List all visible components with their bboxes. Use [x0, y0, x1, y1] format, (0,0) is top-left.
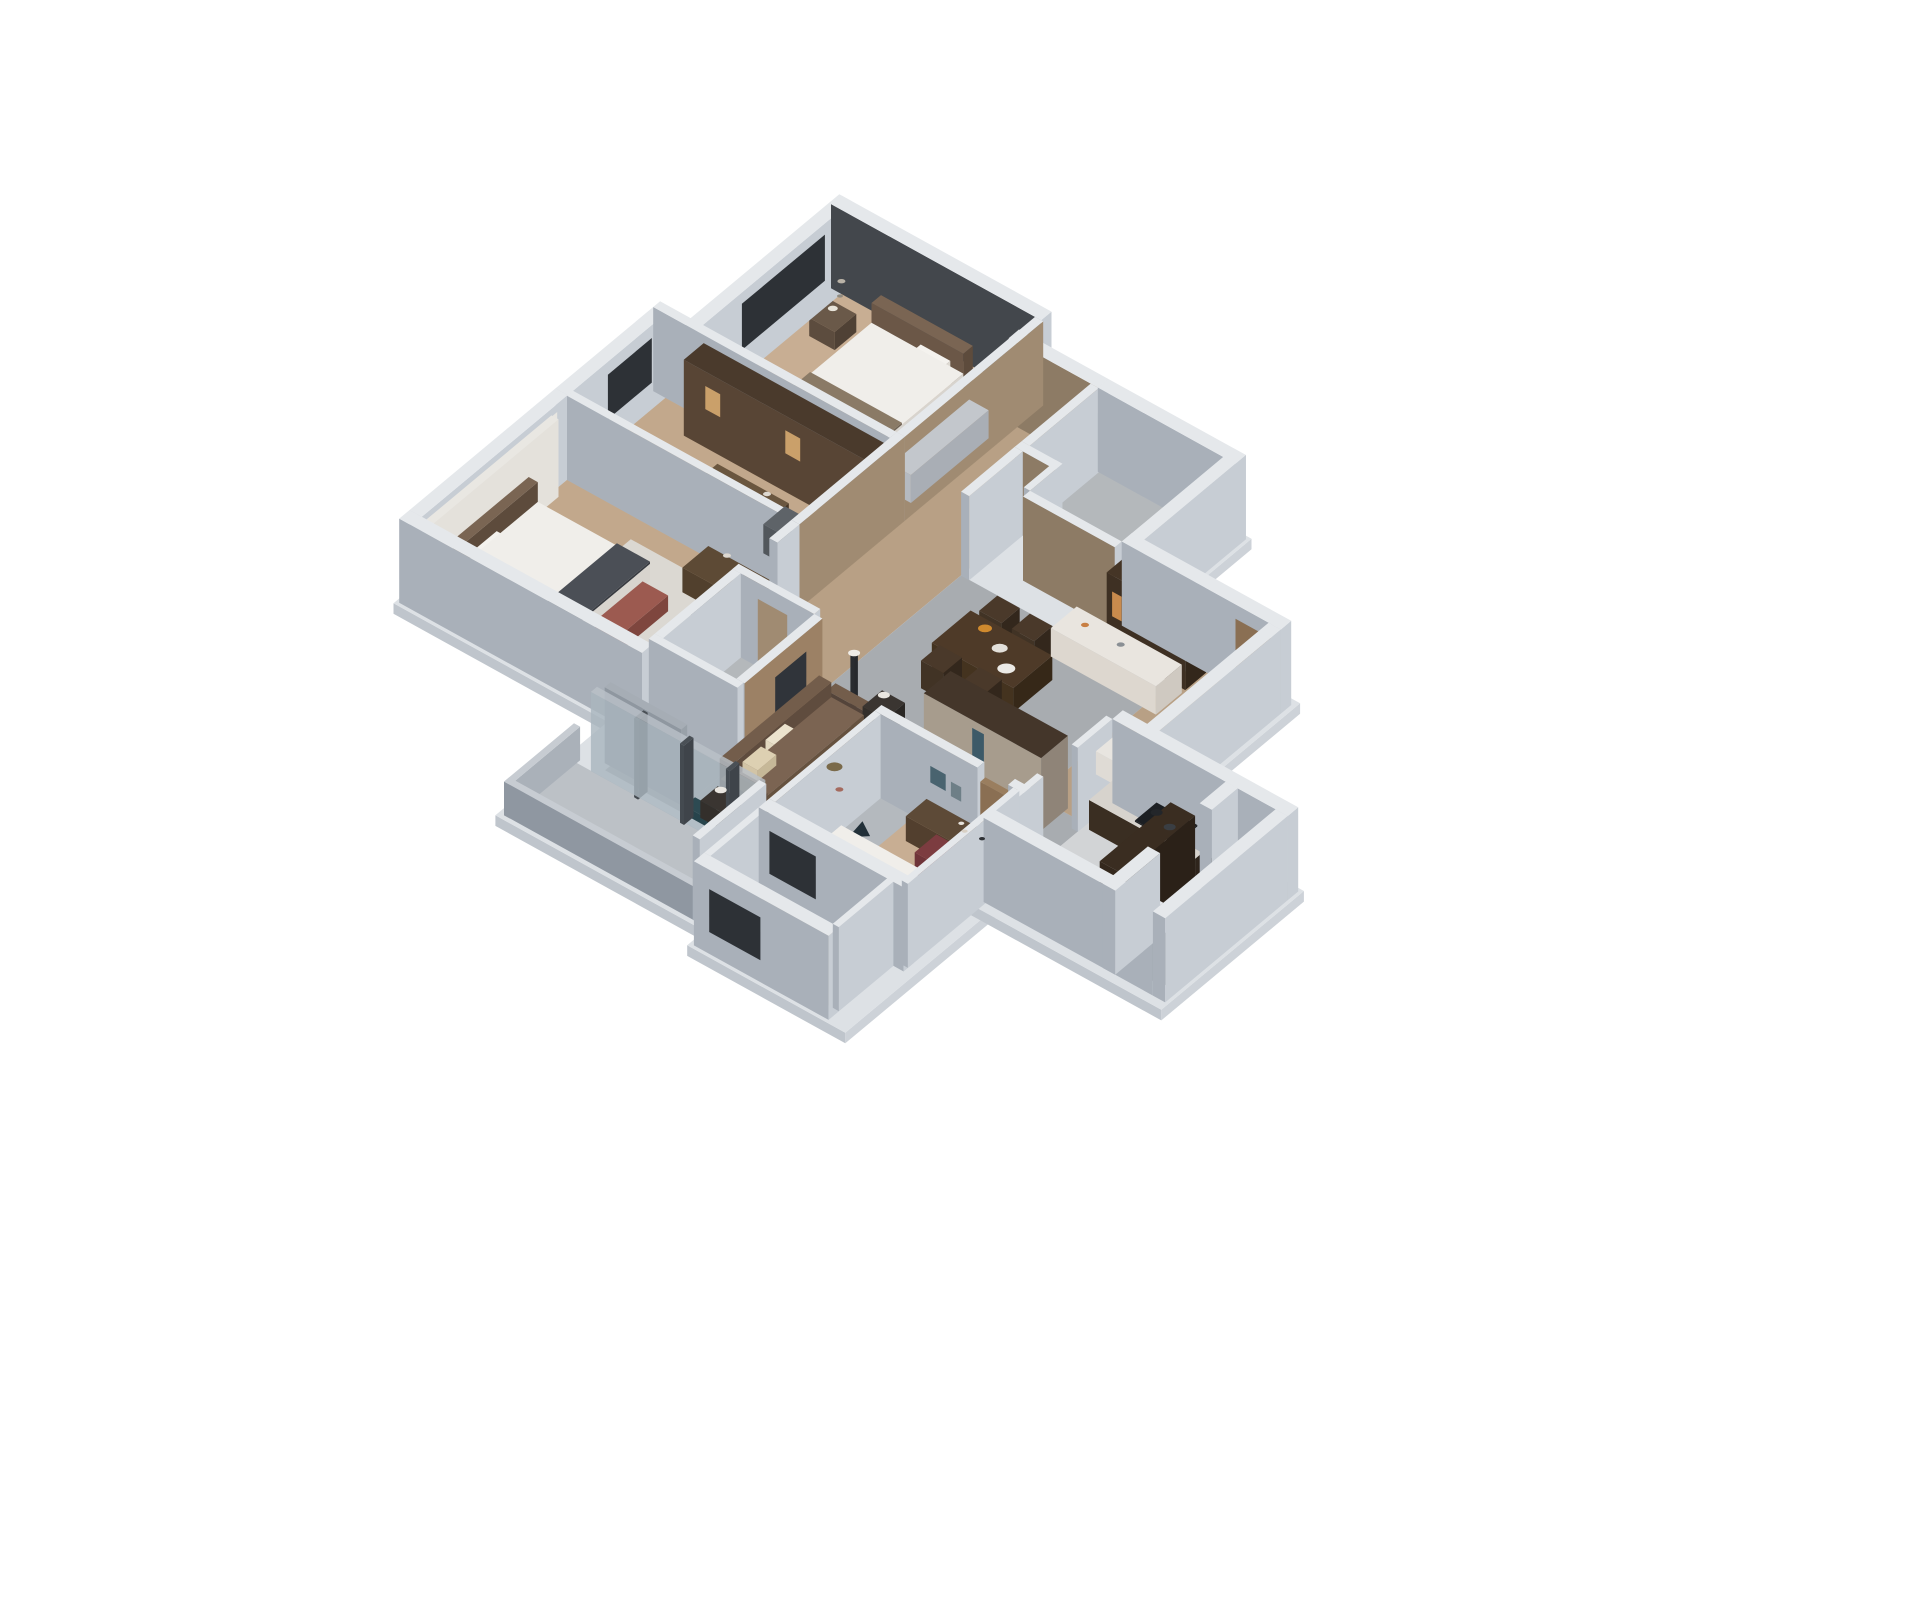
- fruit-plate-dining: [978, 625, 992, 633]
- wall-dining-entry-north-face-east: [1281, 621, 1291, 714]
- wall-kitchen-west-a-face-south: [1072, 744, 1078, 832]
- wine-cabinet-backlit-panel-0: [1112, 592, 1122, 622]
- wall-kitchen-north-exterior-face-east: [1288, 807, 1298, 900]
- decor-counter-1: [1081, 623, 1089, 627]
- desk-lamp-master: [723, 553, 731, 557]
- floor-lamp-shade: [848, 650, 860, 657]
- wall-bedroom-b-east-face-south: [902, 880, 908, 968]
- page-canvas: [0, 0, 1920, 1617]
- pendant-light-2: [837, 294, 843, 297]
- placemat-dining: [997, 664, 1015, 674]
- pot-cooktop-2: [1164, 824, 1176, 831]
- lamp-side-table-north: [878, 692, 890, 699]
- pot-cooktop-1: [1151, 809, 1163, 816]
- lamp-side-table-south: [715, 787, 727, 794]
- lamp-nightstand-a: [828, 306, 838, 312]
- wall-hall-east-lower-face-south: [961, 492, 969, 581]
- apartment-3d-floor-plan-render: [0, 0, 1920, 1617]
- clock-desk-b: [979, 837, 985, 840]
- mug-desk-b-2: [962, 829, 968, 832]
- decor-counter-2: [1117, 642, 1125, 646]
- mug-desk-b-1: [958, 822, 964, 825]
- wall-duct-east-exterior-face-south: [1153, 911, 1165, 1002]
- desk-lamp-study: [763, 492, 771, 496]
- slider-mullion-2-face-south: [680, 744, 684, 826]
- bonsai-coffee-table: [827, 762, 843, 771]
- pendant-light-1: [837, 279, 845, 283]
- wall-terrace-east-face-south: [833, 924, 839, 1012]
- slider-mullion-2-face-east: [684, 738, 694, 825]
- flower-vase-dining: [992, 644, 1008, 653]
- wall-kitchen-duct-divider-b-face-south: [1103, 884, 1115, 975]
- vase-coffee-table: [835, 787, 843, 791]
